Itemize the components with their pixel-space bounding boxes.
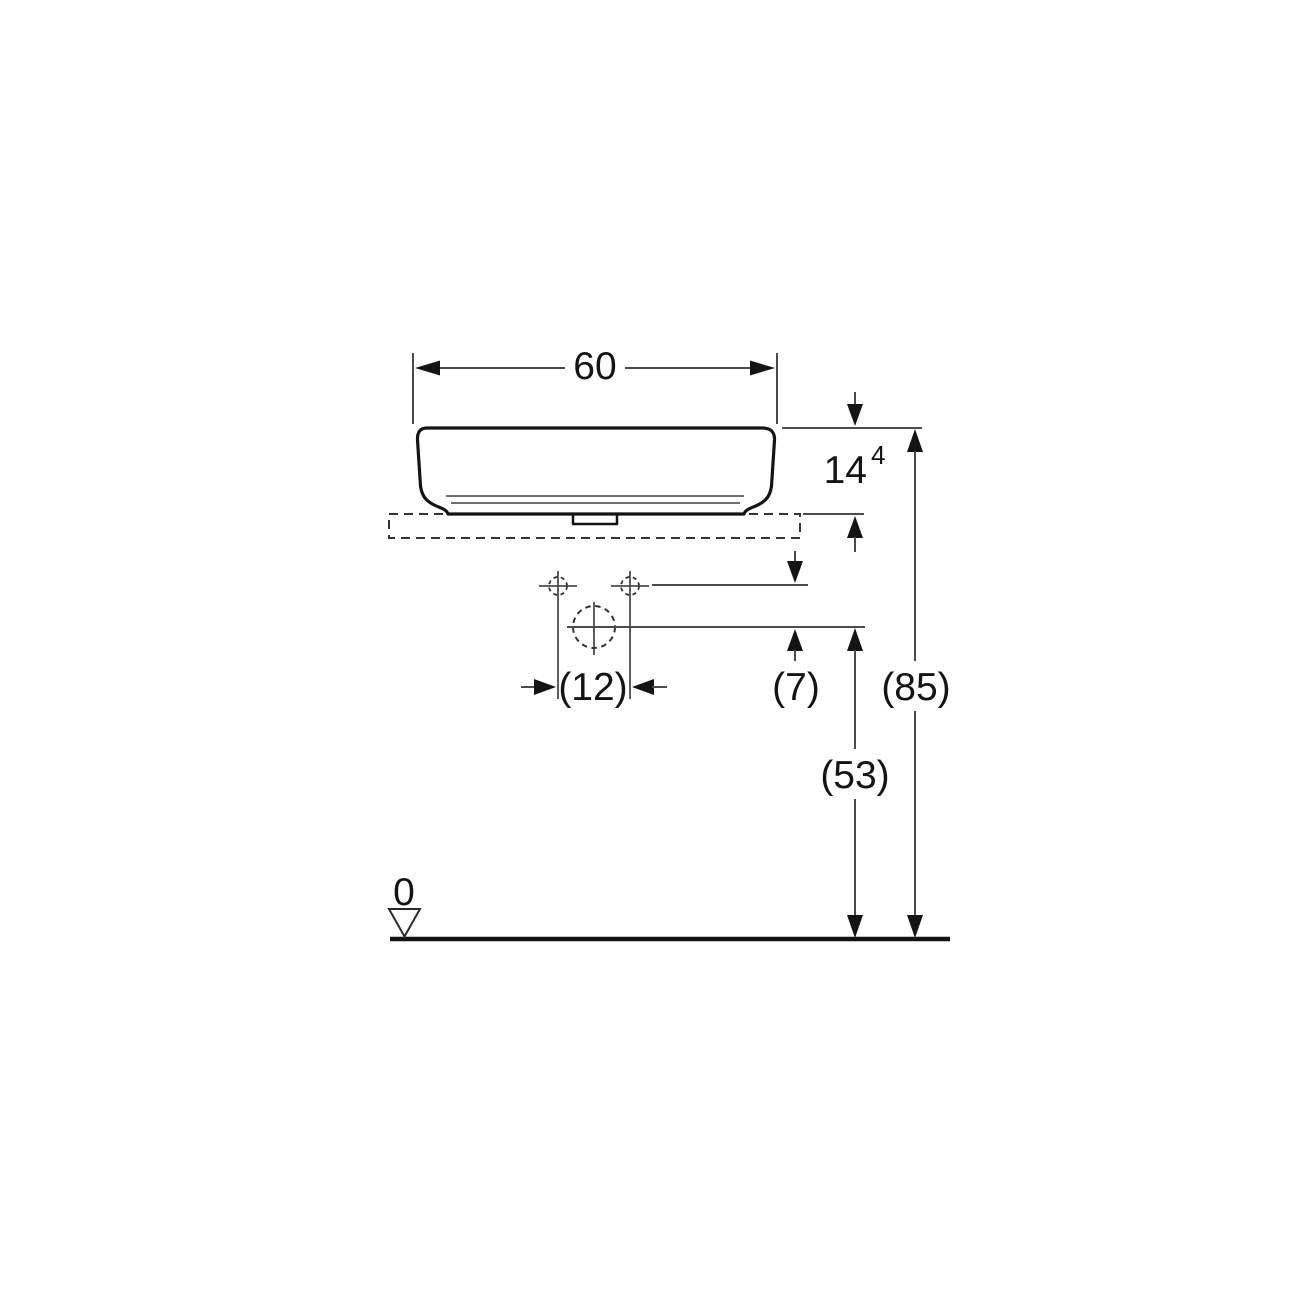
dim-total-height: (85) <box>881 429 950 938</box>
dim-label-tap-spacing: (12) <box>558 666 627 709</box>
arrowhead-down <box>907 915 923 938</box>
drain-marker <box>573 602 615 655</box>
arrowhead-down <box>847 404 863 426</box>
dim-label-counter-to-drain: (7) <box>772 666 820 709</box>
countertop-dashed-outline <box>389 514 800 538</box>
dim-drain-height: (53) <box>820 628 889 938</box>
dim-tap-spacing: (12) <box>521 666 667 709</box>
arrowhead-left <box>415 361 440 376</box>
arrowhead-down <box>847 915 863 938</box>
arrowhead-up <box>847 516 863 538</box>
dim-label-basin-height: 14 <box>824 449 867 492</box>
basin-outline <box>417 428 774 514</box>
basin-front-view <box>417 428 774 524</box>
arrowhead-up <box>907 429 923 452</box>
dim-basin-height: 14 4 <box>782 392 922 552</box>
arrowhead-up <box>847 628 863 651</box>
arrowhead-right <box>750 361 775 376</box>
washbasin-dimension-drawing: 60 14 4 <box>0 0 1300 1300</box>
arrowhead-up <box>787 629 803 651</box>
dim-label-drain-height: (53) <box>820 754 889 797</box>
floor-datum: 0 <box>389 871 950 939</box>
dim-label-total-height: (85) <box>881 666 950 709</box>
dim-label-basin-height-superscript: 4 <box>871 440 885 470</box>
arrowhead-down <box>787 561 803 583</box>
datum-zero-label: 0 <box>393 871 415 914</box>
arrowhead-left-pointing <box>632 679 654 695</box>
drawing-canvas: 60 14 4 <box>0 0 1300 1300</box>
dim-basin-width: 60 <box>413 345 777 424</box>
dim-label-basin-width: 60 <box>573 345 616 388</box>
arrowhead-right-pointing <box>534 679 556 695</box>
